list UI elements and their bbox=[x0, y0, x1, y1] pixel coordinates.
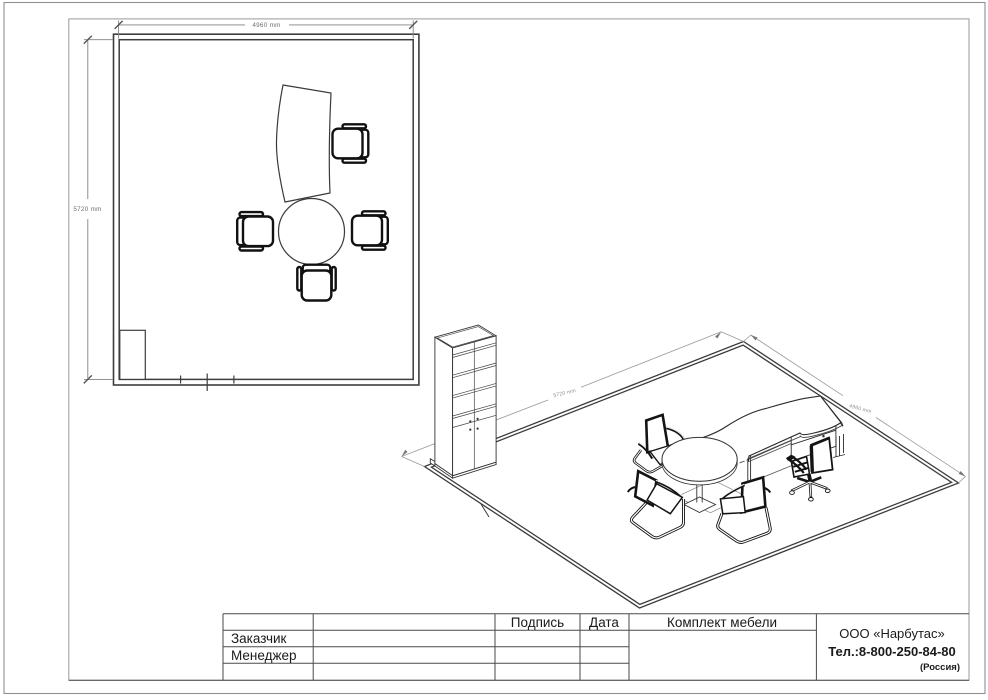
svg-text:Комплект мебели: Комплект мебели bbox=[667, 615, 777, 630]
svg-text:Подпись: Подпись bbox=[511, 615, 564, 630]
svg-text:Менеджер: Менеджер bbox=[231, 648, 297, 663]
svg-text:(Россия): (Россия) bbox=[920, 662, 960, 673]
svg-text:ООО «Нарбутас»: ООО «Нарбутас» bbox=[839, 626, 944, 641]
svg-text:Тел.:8-800-250-84-80: Тел.:8-800-250-84-80 bbox=[828, 644, 956, 659]
svg-text:4960 mm: 4960 mm bbox=[252, 22, 280, 29]
svg-text:Заказчик: Заказчик bbox=[231, 631, 287, 646]
svg-text:Дата: Дата bbox=[589, 615, 619, 630]
svg-text:5720 mm: 5720 mm bbox=[73, 206, 101, 213]
